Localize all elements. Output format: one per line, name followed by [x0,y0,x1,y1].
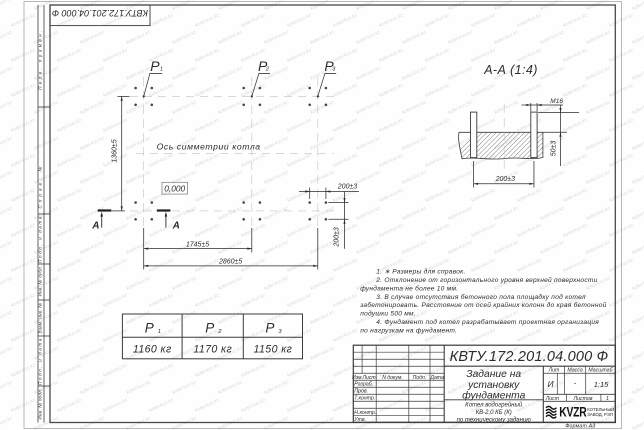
svg-text:N докум.: N докум. [382,375,403,381]
svg-text:КВТУ.172.201.04.000 Ф: КВТУ.172.201.04.000 Ф [52,8,148,18]
svg-text:Изм.: Изм. [352,375,363,381]
svg-text:Ось симметрии котла: Ось симметрии котла [157,141,261,151]
svg-text:200±3: 200±3 [333,227,340,248]
svg-text:A: A [91,220,99,231]
svg-text:забетонировать. Расстояние от: забетонировать. Расстояние от осей крайн… [359,301,606,309]
svg-text:2860±5: 2860±5 [218,259,242,266]
svg-text:KVZR: KVZR [559,404,587,420]
svg-text:1. ∗ Размеры для справок.: 1. ∗ Размеры для справок. [376,268,465,276]
svg-text:Перв. примен.: Перв. примен. [38,28,43,90]
svg-text:Масса: Масса [567,368,582,374]
svg-text:200±3: 200±3 [337,184,358,191]
svg-text:установку: установку [467,380,520,391]
svg-text:Подп. и дата: Подп. и дата [38,337,43,385]
svg-text:50±3: 50±3 [550,141,557,157]
svg-text:Дата: Дата [429,375,444,381]
svg-text:М16: М16 [550,98,563,105]
svg-text:по техническому заданию: по техническому заданию [457,417,532,423]
svg-text:Взам. инв. №: Взам. инв. № [38,303,43,334]
svg-text:3. В случае отсутствия бетонн: 3. В случае отсутствия бетонного пола пл… [376,293,586,301]
svg-text:ЗАВОД, РЭП: ЗАВОД, РЭП [587,412,613,417]
svg-text:1360±5: 1360±5 [111,139,118,162]
svg-text:Задание на: Задание на [466,369,521,380]
svg-text:Утв.: Утв. [354,417,366,423]
svg-text:P: P [150,58,160,74]
svg-text:1: 1 [158,329,161,335]
svg-text:Формат А3: Формат А3 [565,423,595,429]
svg-text:2. Отклонение от горизонтальн: 2. Отклонение от горизонтального уровня … [375,276,597,284]
svg-text:Инв. № дубл.: Инв. № дубл. [38,266,43,297]
svg-text:Котел водогрейный: Котел водогрейный [465,402,523,409]
svg-text:1160 кг: 1160 кг [133,344,172,356]
svg-text:КВТУ.172.201.04.000 Ф: КВТУ.172.201.04.000 Ф [450,349,609,365]
svg-text:Лист: Лист [362,375,376,381]
svg-text:P: P [265,321,274,336]
svg-text:A: A [172,220,180,231]
svg-text:Подп.: Подп. [413,375,427,381]
svg-text:А-А (1:4): А-А (1:4) [483,63,538,77]
svg-text:4. Фундамент под котел разраб: 4. Фундамент под котел разрабатывает про… [376,318,599,326]
svg-text:Масштаб: Масштаб [588,368,613,374]
svg-text:Т.контр.: Т.контр. [354,396,375,402]
svg-text:P: P [145,321,154,336]
svg-text:1:15: 1:15 [594,380,609,389]
svg-text:Пров.: Пров. [354,389,368,395]
svg-text:1170 кг: 1170 кг [193,344,232,356]
svg-text:подушки 500 мм.: подушки 500 мм. [360,310,416,318]
svg-text:2: 2 [265,66,269,72]
svg-text:Справ. №: Справ. № [38,164,43,209]
svg-text:1150 кг: 1150 кг [254,344,293,356]
svg-text:Лит: Лит [548,368,560,374]
svg-text:1: 1 [160,66,163,72]
svg-text:0,000: 0,000 [164,184,185,194]
svg-text:Подп. и дата: Подп. и дата [38,215,43,263]
svg-text:200±3: 200±3 [495,176,516,183]
svg-text:КВ-2,0 КБ (К): КВ-2,0 КБ (К) [476,410,512,416]
svg-text:Разраб.: Разраб. [354,382,373,388]
svg-text:фундамента не более 10 мм.: фундамента не более 10 мм. [360,284,458,292]
svg-text:Инв. № подл.: Инв. № подл. [38,389,43,420]
svg-text:И: И [547,379,554,389]
svg-text:Н.контр.: Н.контр. [354,410,376,416]
svg-text:1745±5: 1745±5 [186,241,209,248]
svg-text:по нагрузкам на фундамент.: по нагрузкам на фундамент. [360,326,457,334]
svg-text:P: P [205,321,214,336]
